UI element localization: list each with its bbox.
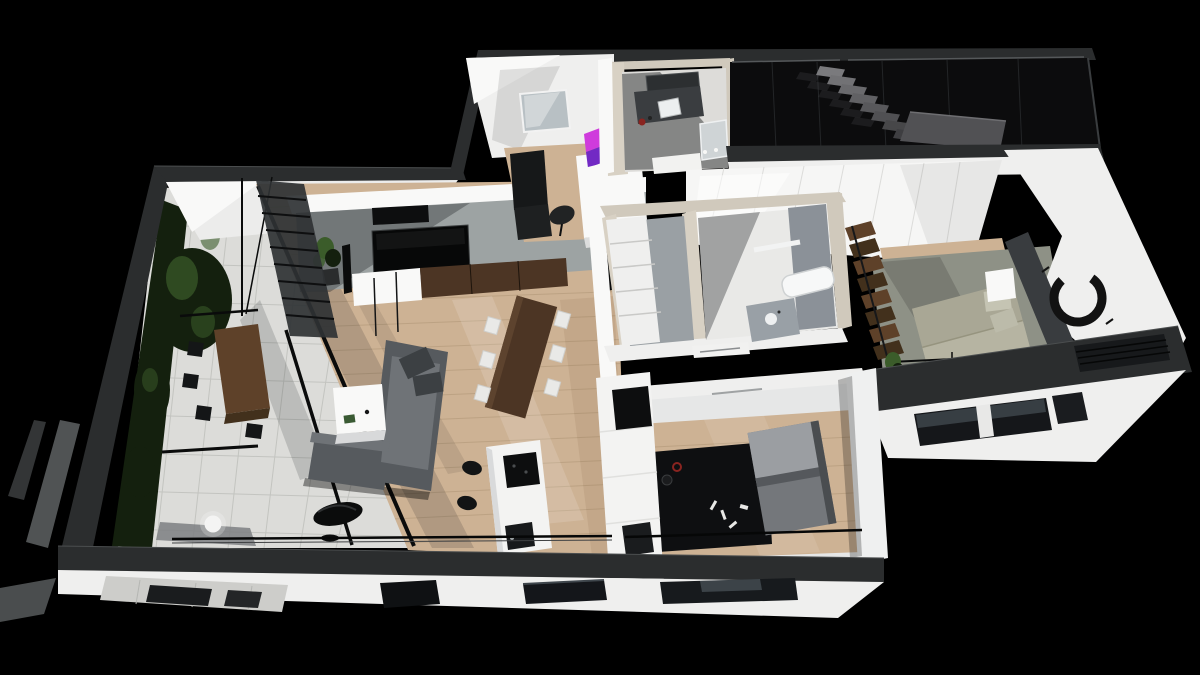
soundbar [372,205,429,225]
white-strip-office-bath [598,58,614,175]
sphere-lamp [205,516,222,533]
coffee-table-top [333,384,386,434]
apartment-3d-plan-svg [0,0,1200,675]
cooktop-knob-1 [512,464,515,467]
built-in-oven [612,386,652,430]
floor-plan-render [0,0,1200,675]
sconce-1 [703,150,707,154]
office-cabinet-lower [514,204,552,240]
sliver-glazing-2 [224,590,262,608]
north-wall-band [154,166,466,182]
dark-bottle [648,116,652,120]
outdoor-chair-2 [182,373,199,389]
east-window-2 [1052,392,1088,424]
cabinet-dark-niche [622,522,654,556]
green-mass-3 [125,446,155,498]
rug-dark-disc [662,475,672,485]
green-book [343,414,355,423]
vanity-sink [658,98,681,118]
plant-leaves-2 [325,249,341,267]
window-2-glint [700,579,762,592]
remote [365,410,369,414]
mirror [700,120,728,160]
red-kettle [639,119,646,126]
cooktop-knob-2 [524,470,527,473]
green-highlight-1 [166,256,198,300]
facade-window-0 [380,580,440,608]
nightstand [985,268,1016,302]
cooktop [503,452,540,488]
round-sink [765,313,777,325]
green-highlight-2 [191,306,215,338]
outdoor-chair-1 [187,341,204,357]
outdoor-chair-4 [245,423,263,439]
office-cabinet [510,150,548,210]
media-console-white [352,268,422,306]
sink-faucet [778,311,781,314]
outdoor-chair-3 [195,405,212,421]
sconce-2 [714,148,718,152]
upper-bathroom [598,58,736,176]
green-highlight-3 [142,368,158,392]
